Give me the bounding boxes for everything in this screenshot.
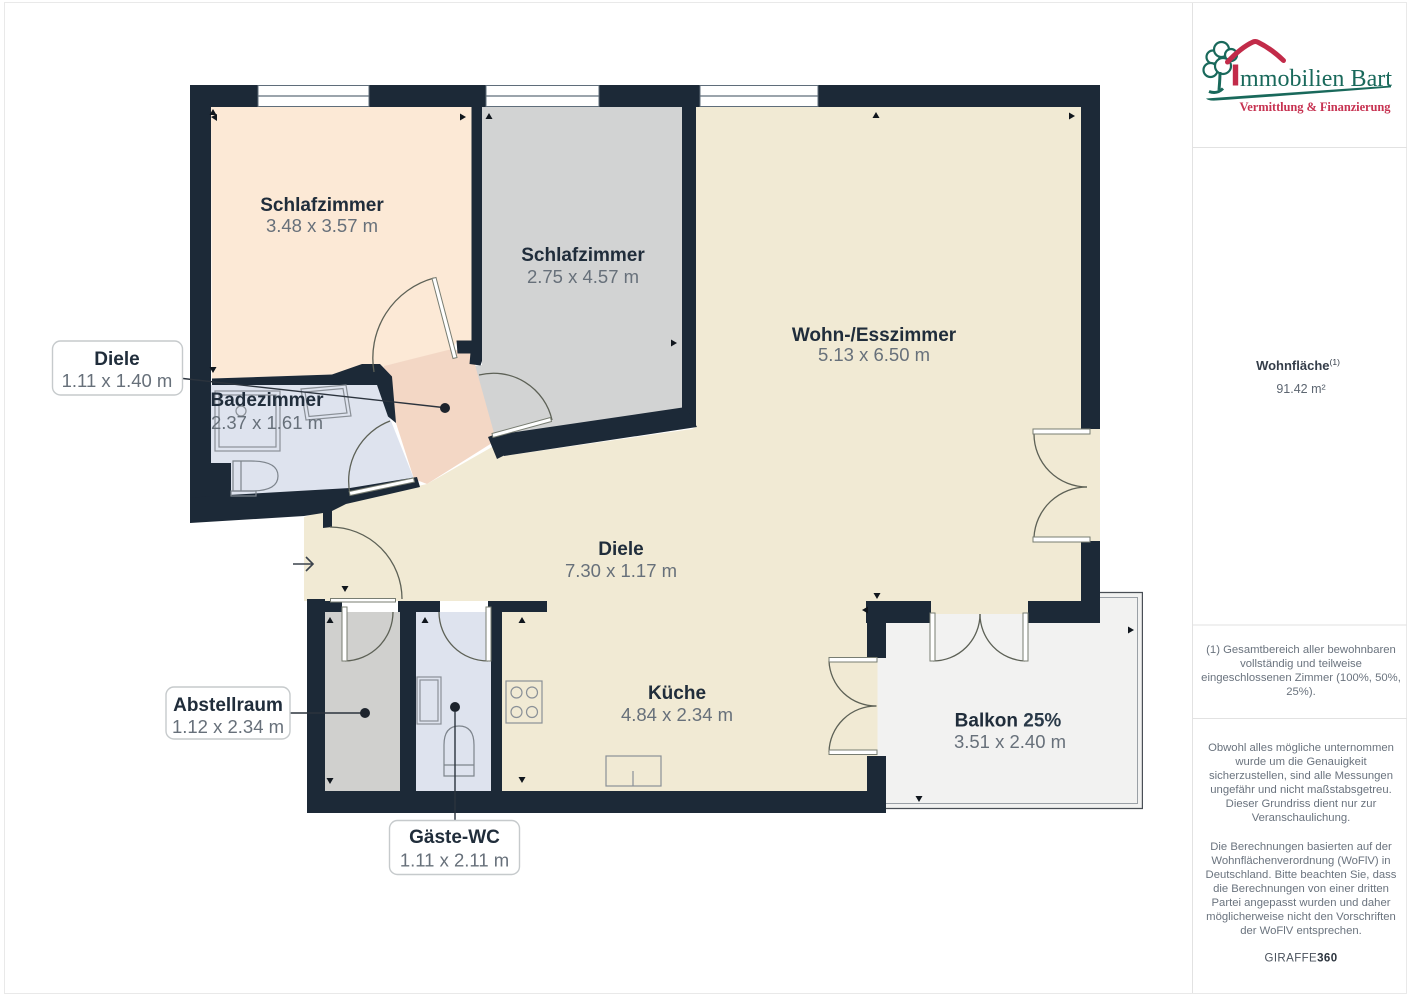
svg-text:Wohnflächenverordnung (WoFlV): Wohnflächenverordnung (WoFlV) in (1211, 855, 1390, 867)
svg-text:die Berechnungen von einer dri: die Berechnungen von einer dritten (1213, 883, 1389, 895)
svg-text:ungefähr und nicht maßstabsget: ungefähr und nicht maßstabsgetreu. (1210, 784, 1392, 796)
svg-text:91.42 m²: 91.42 m² (1276, 382, 1325, 396)
svg-text:Balkon 25%: Balkon 25% (955, 711, 1062, 732)
svg-text:vollständig und teilweise: vollständig und teilweise (1240, 658, 1362, 670)
svg-text:4.84 x 2.34 m: 4.84 x 2.34 m (621, 704, 733, 725)
svg-text:1.12 x 2.34 m: 1.12 x 2.34 m (172, 716, 284, 737)
svg-text:Obwohl alles mögliche unternom: Obwohl alles mögliche unternommen (1208, 742, 1394, 754)
svg-text:(1) Gesamtbereich aller bewohn: (1) Gesamtbereich aller bewohnbaren (1206, 644, 1396, 656)
svg-text:1.11 x 1.40 m: 1.11 x 1.40 m (62, 370, 173, 391)
svg-text:wurde um die Genauigkeit: wurde um die Genauigkeit (1234, 756, 1367, 768)
svg-text:Abstellraum: Abstellraum (173, 695, 283, 716)
svg-text:Küche: Küche (648, 683, 706, 704)
svg-text:Vermittlung & Finanzierung: Vermittlung & Finanzierung (1240, 100, 1392, 114)
svg-text:2.37 x 1.61 m: 2.37 x 1.61 m (211, 412, 323, 433)
svg-text:Schlafzimmer: Schlafzimmer (260, 195, 384, 216)
svg-text:eingeschlossenen Zimmer (100%,: eingeschlossenen Zimmer (100%, 50%, (1201, 672, 1401, 684)
svg-text:1.11 x 2.11 m: 1.11 x 2.11 m (400, 850, 509, 871)
svg-text:der WoFlV entsprechen.: der WoFlV entsprechen. (1240, 925, 1362, 937)
svg-text:5.13 x 6.50 m: 5.13 x 6.50 m (818, 344, 930, 365)
svg-text:Badezimmer: Badezimmer (211, 390, 325, 411)
svg-text:Dieser Grundriss dient nur zur: Dieser Grundriss dient nur zur (1226, 798, 1377, 810)
svg-text:2.75 x 4.57 m: 2.75 x 4.57 m (527, 266, 639, 287)
svg-text:möglicherweise nicht den Vorsc: möglicherweise nicht den Vorschriften (1206, 911, 1396, 923)
svg-text:25%).: 25%). (1286, 686, 1316, 698)
svg-text:Gäste-WC: Gäste-WC (409, 827, 500, 848)
svg-text:Die Berechnungen basierten auf: Die Berechnungen basierten auf der (1210, 841, 1392, 853)
svg-text:Schlafzimmer: Schlafzimmer (521, 245, 645, 266)
svg-text:3.48 x 3.57 m: 3.48 x 3.57 m (266, 215, 378, 236)
svg-text:Partei angepasst wurden und da: Partei angepasst wurden und daher (1212, 897, 1391, 909)
svg-text:Wohn-/Esszimmer: Wohn-/Esszimmer (792, 325, 957, 346)
svg-text:Deutschland. Bitte beachten Si: Deutschland. Bitte beachten Sie, dass (1206, 869, 1397, 881)
svg-text:Diele: Diele (94, 349, 139, 370)
svg-text:3.51 x 2.40 m: 3.51 x 2.40 m (954, 731, 1066, 752)
svg-text:Veranschaulichung.: Veranschaulichung. (1252, 812, 1351, 824)
svg-text:Diele: Diele (598, 539, 643, 560)
svg-text:Wohnfläche(1): Wohnfläche(1) (1256, 357, 1340, 373)
svg-text:7.30 x 1.17 m: 7.30 x 1.17 m (565, 560, 677, 581)
svg-text:sicherzustellen, sind alle Mes: sicherzustellen, sind alle Messungen (1209, 770, 1393, 782)
svg-text:GIRAFFE360: GIRAFFE360 (1264, 953, 1337, 965)
